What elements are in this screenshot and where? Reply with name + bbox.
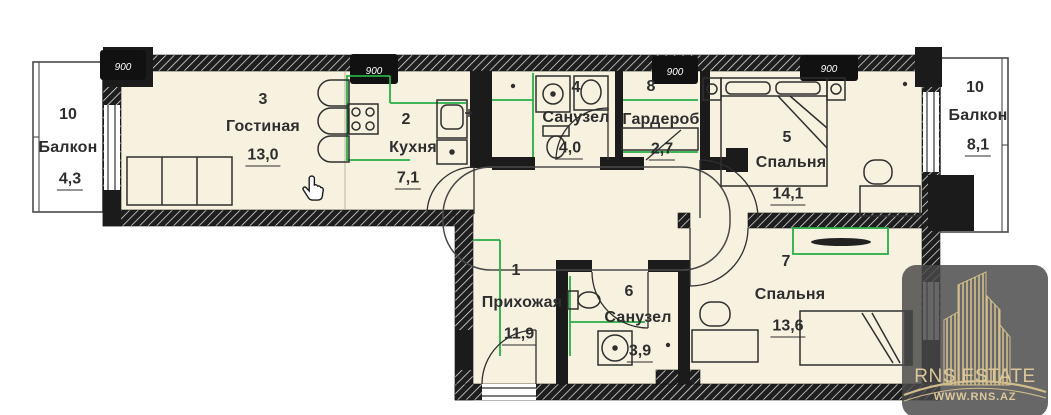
room-name-hallway: Прихожая bbox=[482, 295, 563, 311]
room-number-bedroom-1: 5 bbox=[783, 130, 792, 146]
room-name-kitchen: Кухня bbox=[389, 140, 437, 156]
room-name-wardrobe: Гардероб bbox=[622, 112, 699, 128]
room-number-hallway: 1 bbox=[512, 263, 521, 279]
dimension-tag: 900 bbox=[821, 64, 838, 75]
room-number-balcony-left: 10 bbox=[59, 107, 77, 123]
room-number-bedroom-2: 7 bbox=[782, 254, 791, 270]
room-area-kitchen: 7,1 bbox=[395, 171, 421, 190]
watermark-title: RNS ESTATE bbox=[914, 366, 1035, 388]
room-number-bath-main: 4 bbox=[572, 80, 581, 96]
room-area-hallway: 11,9 bbox=[502, 327, 536, 346]
dimension-tag: 900 bbox=[667, 67, 684, 78]
watermark: RNS ESTATE WWW.RNS.AZ bbox=[902, 265, 1048, 415]
room-name-bedroom-2: Спальня bbox=[755, 287, 826, 303]
room-number-wardrobe: 8 bbox=[647, 79, 656, 95]
room-area-bath-main: 4,0 bbox=[557, 141, 583, 160]
ceiling-point bbox=[511, 84, 515, 88]
room-name-bath-small: Санузел bbox=[604, 310, 671, 326]
dimension-tag: 900 bbox=[115, 62, 132, 73]
room-area-balcony-left: 4,3 bbox=[57, 172, 83, 191]
watermark-url: WWW.RNS.AZ bbox=[934, 391, 1017, 403]
room-name-bedroom-1: Спальня bbox=[756, 155, 827, 171]
room-number-living: 3 bbox=[259, 92, 268, 108]
room-area-wardrobe: 2,7 bbox=[649, 142, 675, 161]
room-name-bath-main: Санузел bbox=[542, 110, 609, 126]
room-name-balcony-right: Балкон bbox=[949, 108, 1008, 124]
floorplan-drawing: 900 900 900 900 bbox=[0, 0, 1051, 415]
room-area-balcony-right: 8,1 bbox=[965, 138, 991, 157]
room-number-bath-small: 6 bbox=[625, 284, 634, 300]
room-area-bath-small: 3,9 bbox=[627, 344, 653, 363]
room-area-living: 13,0 bbox=[245, 148, 280, 167]
room-name-balcony-left: Балкон bbox=[39, 140, 98, 156]
floorplan-screenshot: 900 900 900 900 bbox=[0, 0, 1051, 415]
tv-console bbox=[811, 238, 871, 246]
room-name-living: Гостиная bbox=[226, 119, 300, 135]
ceiling-point bbox=[666, 343, 670, 347]
room-area-bedroom-1: 14,1 bbox=[770, 187, 805, 206]
ceiling-point bbox=[903, 82, 907, 86]
room-number-kitchen: 2 bbox=[402, 112, 411, 128]
room-number-balcony-right: 10 bbox=[966, 80, 984, 96]
room-area-bedroom-2: 13,6 bbox=[770, 319, 805, 338]
